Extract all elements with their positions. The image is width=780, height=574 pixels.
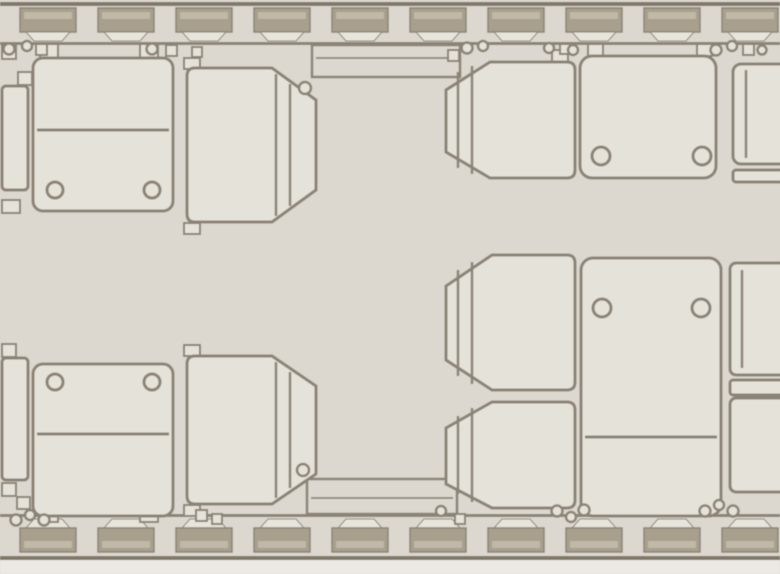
cabin-window-block	[488, 8, 544, 32]
cabin-window-inner	[24, 541, 72, 548]
track-fitting-circle	[728, 506, 739, 517]
ledge-outline	[307, 479, 457, 514]
cabin-window-inner	[414, 541, 462, 548]
seat-aft-left-window	[33, 364, 173, 522]
seat-armrest-cap	[47, 182, 63, 198]
cabin-window-reveal	[260, 32, 304, 41]
cabin-window-block	[722, 528, 778, 552]
cabin-window-reveal	[494, 32, 538, 41]
seat-body	[446, 402, 575, 508]
cabin-window-block	[722, 8, 778, 32]
seat-aft-right-window	[581, 258, 721, 516]
cabin-window-inner	[336, 541, 384, 548]
cabin-window-block	[332, 528, 388, 552]
cabin-window-block	[176, 8, 232, 32]
seat-armrest-cap	[593, 299, 611, 317]
track-fitting-circle	[700, 506, 711, 517]
seat-edge-top-right	[733, 64, 780, 182]
seat-armrest-cap	[592, 147, 610, 165]
cabin-window-block	[98, 8, 154, 32]
seat-mount-tab	[184, 223, 200, 234]
track-fitting-square	[196, 510, 207, 521]
top-hull-line	[0, 2, 780, 6]
cabin-window-reveal	[338, 32, 382, 41]
cabin-window-inner	[414, 12, 462, 19]
cabin-window-inner	[726, 541, 774, 548]
edge-unit-body	[733, 170, 780, 182]
cabin-window-block	[98, 528, 154, 552]
track-fitting-circle	[11, 515, 22, 526]
cabin-floor-plan: Business jet cabin floor plan — top view…	[0, 0, 780, 574]
seat-body	[446, 62, 575, 178]
cabin-window-block	[644, 8, 700, 32]
sideledge-bottom	[307, 479, 457, 514]
track-fitting-circle	[39, 515, 50, 526]
cabin-window-block	[410, 528, 466, 552]
cabin-window-inner	[492, 541, 540, 548]
cabin-window-reveal	[728, 32, 772, 41]
seat-mount-tab	[184, 345, 200, 356]
cabin-window-block	[20, 528, 76, 552]
seat-armrest-cap	[144, 182, 160, 198]
cabin-window-reveal	[260, 519, 304, 528]
seat-aft-right-aisle-lower	[446, 402, 575, 508]
track-fitting-square	[743, 44, 754, 55]
cabin-window-block	[254, 528, 310, 552]
edge-unit-body	[2, 86, 28, 190]
seat-armrest-cap	[693, 147, 711, 165]
track-fitting-circle	[566, 512, 576, 522]
cabin-window-reveal	[572, 519, 616, 528]
track-fitting-circle	[568, 45, 578, 55]
cabin-window-block	[566, 8, 622, 32]
track-fitting-circle	[727, 41, 737, 51]
cabin-window-reveal	[416, 519, 460, 528]
cabin-window-inner	[492, 12, 540, 19]
cabin-window-inner	[258, 12, 306, 19]
cabin-window-inner	[24, 12, 72, 19]
cabin-window-reveal	[650, 519, 694, 528]
cabin-window-inner	[102, 12, 150, 19]
cabin-window-inner	[570, 12, 618, 19]
track-fitting-square	[455, 514, 465, 524]
track-fitting-circle	[22, 41, 32, 51]
cabin-window-block	[332, 8, 388, 32]
cabin-window-reveal	[26, 32, 70, 41]
edge-unit-body	[730, 263, 780, 375]
cabin-window-reveal	[728, 519, 772, 528]
seat-forward-left-window	[33, 44, 173, 211]
seat-armrest-cap	[47, 374, 63, 390]
bottom-margin-strip	[0, 560, 780, 574]
cabin-window-inner	[648, 541, 696, 548]
cabin-window-inner	[180, 541, 228, 548]
edge-unit-body	[730, 398, 780, 492]
cabin-window-block	[410, 8, 466, 32]
plan-root	[0, 0, 780, 574]
edge-unit-tab	[2, 344, 16, 357]
cabin-window-inner	[180, 12, 228, 19]
seat-body	[187, 68, 316, 222]
sideledge-top	[312, 45, 460, 77]
track-fitting-circle	[579, 505, 590, 516]
edge-unit-tab	[2, 483, 16, 496]
seat-armrest-cap	[299, 82, 311, 94]
cabin-window-inner	[726, 12, 774, 19]
track-fitting-circle	[711, 45, 722, 56]
cabin-window-inner	[648, 12, 696, 19]
track-fitting-circle	[25, 510, 35, 520]
cabin-window-block	[488, 528, 544, 552]
track-fitting-circle	[462, 43, 473, 54]
floor-plan-svg: Business jet cabin floor plan — top view…	[0, 0, 780, 574]
cabin-window-reveal	[182, 32, 226, 41]
seat-aft-right-aisle-upper	[446, 255, 575, 390]
seat-mount-tab	[588, 44, 603, 56]
track-fitting-circle	[552, 506, 563, 517]
track-fitting-square	[192, 47, 202, 57]
cabin-window-block	[644, 528, 700, 552]
edge-unit-tab	[17, 497, 30, 509]
track-fitting-circle	[4, 44, 15, 55]
edge-unit-body	[730, 380, 780, 395]
cabin-window-block	[20, 8, 76, 32]
cabin-window-reveal	[338, 519, 382, 528]
track-fitting-circle	[478, 41, 488, 51]
seat-body	[187, 356, 316, 504]
cabin-window-block	[566, 528, 622, 552]
track-fitting-square	[166, 45, 177, 56]
cabin-window-block	[254, 8, 310, 32]
track-fitting-square	[36, 44, 47, 55]
edge-unit-body	[733, 64, 780, 164]
edge-unit-tab	[2, 200, 20, 213]
cabin-window-inner	[570, 541, 618, 548]
cabin-window-reveal	[416, 32, 460, 41]
track-fitting-circle	[147, 44, 158, 55]
seat-body	[581, 258, 721, 516]
seat-forward-right-window	[580, 44, 716, 178]
cabin-window-inner	[336, 12, 384, 19]
cabin-window-block	[176, 528, 232, 552]
track-fitting-circle	[436, 506, 446, 516]
track-fitting-circle	[544, 43, 554, 53]
seat-armrest-cap	[144, 374, 160, 390]
ledge-outline	[312, 45, 460, 77]
track-fitting-square	[448, 50, 459, 61]
cabin-window-inner	[102, 541, 150, 548]
track-fitting-square	[212, 514, 222, 524]
seat-armrest-cap	[297, 464, 309, 476]
cabin-window-reveal	[104, 32, 148, 41]
edge-unit-tab	[18, 72, 32, 85]
edge-unit-body	[2, 358, 28, 480]
track-fitting-circle	[714, 500, 724, 510]
track-fitting-circle	[758, 46, 767, 55]
cabin-window-reveal	[494, 519, 538, 528]
cabin-window-inner	[258, 541, 306, 548]
cabin-window-reveal	[650, 32, 694, 41]
seat-armrest-cap	[692, 299, 710, 317]
seat-body	[446, 255, 575, 390]
bottom-hull-line	[0, 556, 780, 560]
cabin-window-reveal	[572, 32, 616, 41]
